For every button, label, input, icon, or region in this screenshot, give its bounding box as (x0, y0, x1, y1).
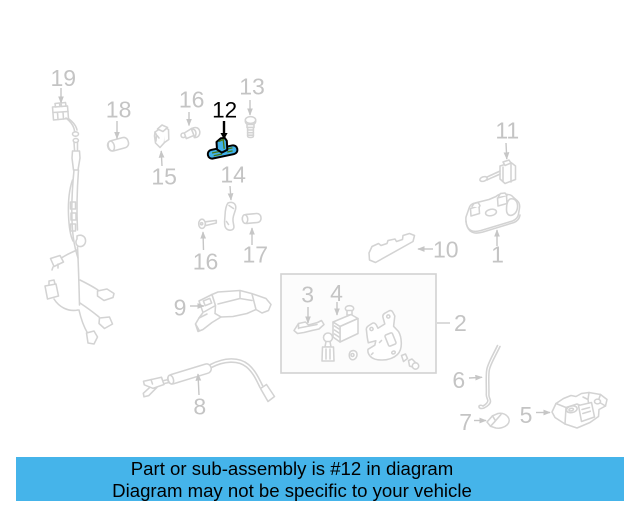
svg-text:16: 16 (193, 248, 219, 274)
svg-text:9: 9 (174, 295, 187, 321)
svg-text:7: 7 (459, 409, 472, 435)
svg-text:12: 12 (212, 98, 237, 123)
svg-text:19: 19 (51, 65, 77, 91)
svg-text:8: 8 (193, 393, 206, 419)
svg-text:17: 17 (243, 242, 269, 268)
svg-text:16: 16 (179, 87, 205, 113)
svg-text:13: 13 (239, 74, 265, 100)
svg-text:5: 5 (520, 402, 533, 428)
svg-text:11: 11 (495, 117, 519, 143)
svg-text:6: 6 (452, 367, 465, 393)
svg-text:15: 15 (151, 164, 177, 190)
svg-text:10: 10 (433, 236, 459, 262)
svg-text:3: 3 (301, 282, 314, 308)
svg-text:18: 18 (106, 97, 132, 123)
svg-text:14: 14 (220, 162, 246, 188)
svg-text:2: 2 (454, 310, 467, 336)
